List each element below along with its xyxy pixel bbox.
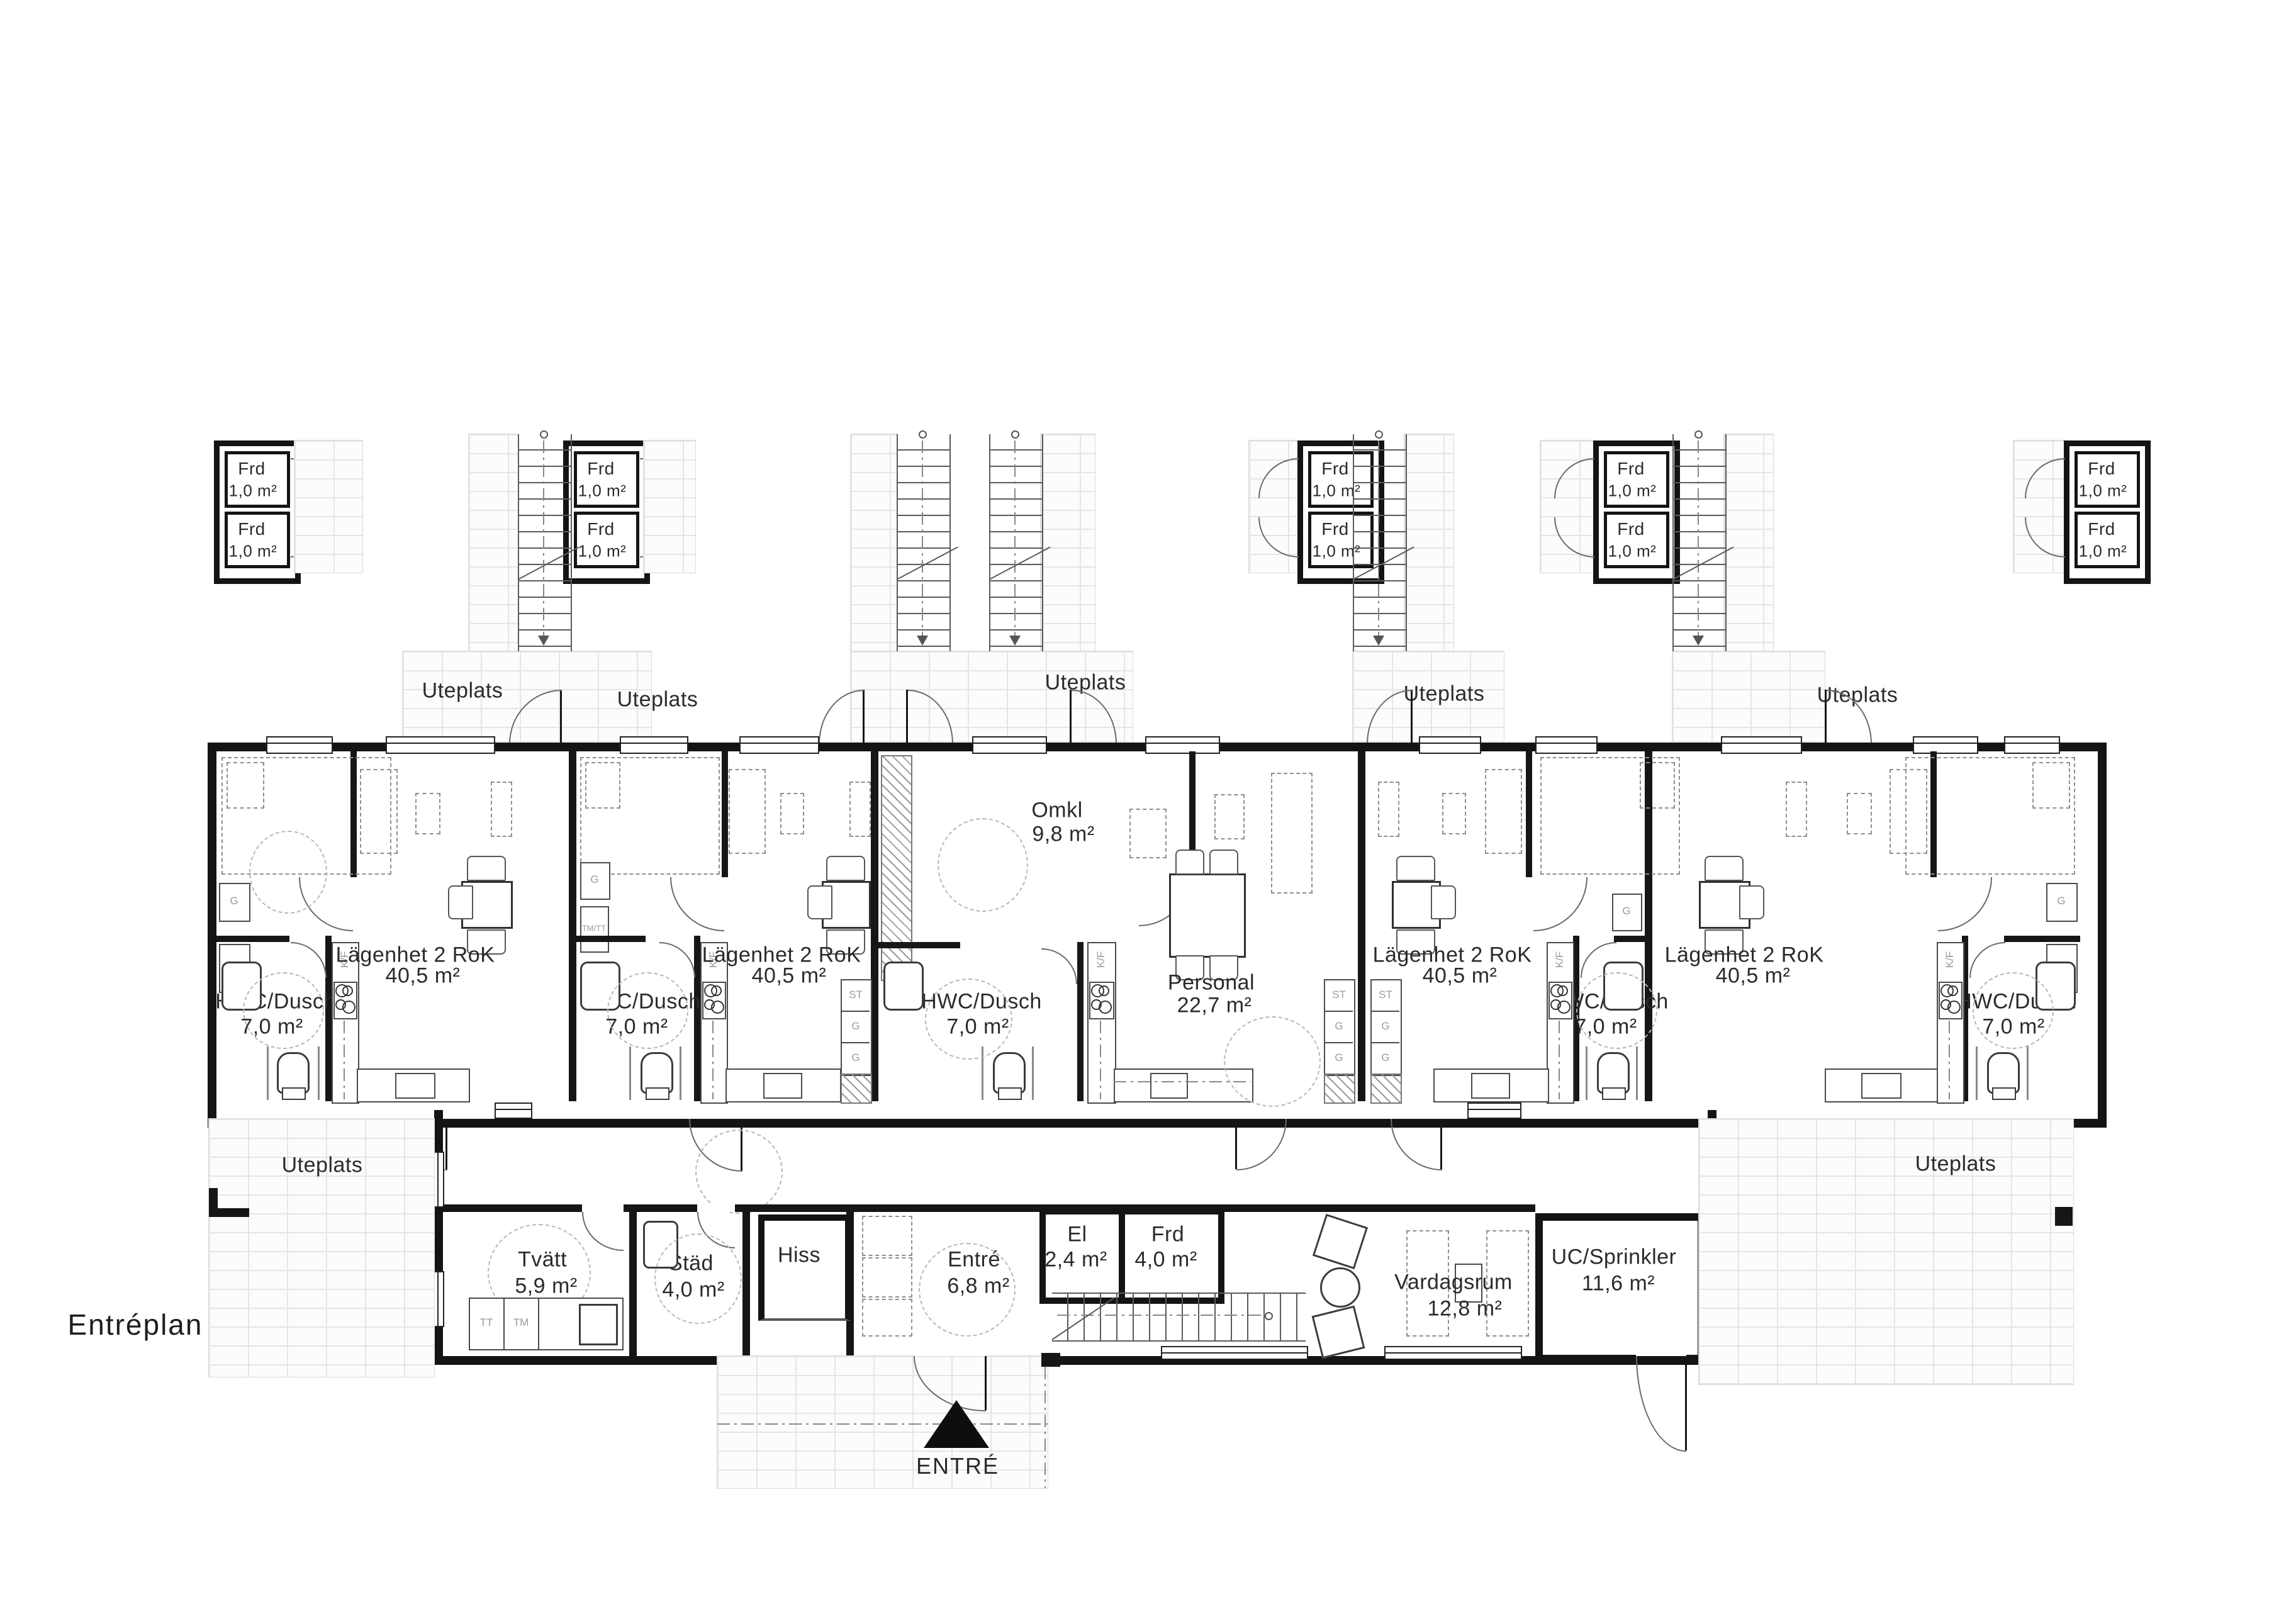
coffee-table: [780, 793, 804, 834]
turning-circle: [919, 1243, 1016, 1337]
storage-label: Frd: [1617, 459, 1645, 479]
turning-circle: [695, 1130, 783, 1214]
room-area: 11,6 m²: [1582, 1272, 1655, 1296]
storage-label: Frd: [238, 459, 266, 479]
coat-rack: [841, 1074, 872, 1104]
appliance: [579, 1304, 618, 1345]
uteplats-label: Uteplats: [617, 688, 698, 712]
armchair: [1129, 809, 1167, 858]
room-label: Hiss: [778, 1243, 820, 1268]
room-label: UC/Sprinkler: [1552, 1245, 1677, 1270]
room-area: 2,4 m²: [1044, 1248, 1107, 1272]
entrance-label: ENTRÉ: [916, 1453, 999, 1479]
storage-area: 1,0 m²: [229, 481, 277, 501]
uteplats-label: Uteplats: [1045, 671, 1126, 695]
coffee-table: [1214, 794, 1245, 839]
paving: [644, 440, 695, 573]
bed-pillow: [2032, 762, 2070, 809]
storage-area: 1,0 m²: [578, 542, 627, 561]
armchair: [1378, 782, 1399, 837]
coat-storage: [862, 1257, 912, 1298]
turning-circle: [1576, 972, 1657, 1049]
window: [266, 736, 333, 754]
window: [433, 1152, 444, 1208]
uteplats-label: Uteplats: [422, 679, 503, 704]
apartment-area: 40,5 m²: [1716, 964, 1791, 989]
bed-pillow: [1640, 762, 1675, 809]
sink: [1471, 1073, 1510, 1099]
storage-area: 1,0 m²: [578, 481, 627, 501]
room-area: 9,8 m²: [1032, 822, 1094, 847]
window: [1535, 736, 1598, 754]
module-wall: [1358, 751, 1365, 1101]
window: [739, 736, 819, 754]
storage-label: Frd: [587, 519, 615, 539]
room-area: 22,7 m²: [1177, 994, 1252, 1018]
turning-circle: [1973, 972, 2054, 1049]
apartment-area: 40,5 m²: [386, 964, 461, 989]
storage-label: Frd: [1321, 519, 1349, 539]
sink: [395, 1073, 435, 1099]
storage-area: 1,0 m²: [2079, 542, 2127, 561]
room-area: 4,0 m²: [1134, 1248, 1197, 1272]
coat-rack: [1370, 1074, 1402, 1104]
storage-label: Frd: [1321, 459, 1349, 479]
storage-area: 1,0 m²: [1608, 481, 1657, 501]
turning-circle: [607, 972, 688, 1049]
storage-label: Frd: [587, 459, 615, 479]
sofa: [1890, 769, 1927, 854]
window: [2004, 736, 2060, 754]
window: [620, 736, 688, 754]
storage-label: Frd: [2088, 519, 2115, 539]
apartment-area: 40,5 m²: [1423, 964, 1498, 989]
window: [1161, 1346, 1308, 1360]
sofa: [1485, 769, 1522, 854]
window: [972, 736, 1047, 754]
storage-label: Frd: [1617, 519, 1645, 539]
floor-plan: Frd 1,0 m² Frd 1,0 m² Frd 1,0 m² Frd 1,0…: [0, 0, 2296, 1604]
window: [433, 1271, 444, 1327]
storage-area: 1,0 m²: [229, 542, 277, 561]
page-title: Entréplan: [68, 1308, 203, 1342]
uteplats-label: Uteplats: [282, 1153, 363, 1178]
window: [1384, 1346, 1522, 1360]
sofa: [1271, 773, 1313, 894]
room-label: Omkl: [1031, 799, 1082, 823]
uteplats-label: Uteplats: [1404, 682, 1485, 707]
turning-circle: [654, 1233, 742, 1324]
bed-pillow: [585, 762, 620, 809]
storage-label: Frd: [2088, 459, 2115, 479]
window: [1145, 736, 1220, 754]
window: [386, 736, 495, 754]
sink: [1861, 1073, 1901, 1099]
dining-table: [1169, 873, 1246, 958]
armchair: [491, 782, 512, 837]
paving: [294, 440, 362, 573]
storage-area: 1,0 m²: [1608, 542, 1657, 561]
window: [1419, 736, 1481, 754]
armchair: [849, 782, 871, 837]
turning-circle: [1224, 1016, 1321, 1107]
sofa: [360, 769, 398, 854]
bed-pillow: [227, 762, 264, 809]
room-label: Personal: [1168, 971, 1255, 995]
coffee-table: [415, 793, 440, 834]
sofa: [729, 769, 766, 854]
room-area: 12,8 m²: [1428, 1297, 1503, 1321]
storage-label: Frd: [238, 519, 266, 539]
room-label: Frd: [1151, 1223, 1185, 1247]
window: [1721, 736, 1802, 754]
sink: [1150, 1073, 1188, 1099]
coat-storage: [862, 1299, 912, 1337]
armchair: [1786, 782, 1807, 837]
turning-circle: [938, 818, 1028, 912]
window: [1913, 736, 1978, 754]
turning-circle: [243, 972, 324, 1049]
basin: [883, 962, 924, 1011]
coffee-table: [1847, 793, 1872, 834]
module-wall: [569, 751, 576, 1101]
uteplats-label: Uteplats: [1915, 1152, 1996, 1177]
room-label: Vardagsrum: [1394, 1270, 1513, 1295]
room-label: El: [1067, 1223, 1087, 1247]
coffee-table: [1442, 793, 1466, 834]
turning-circle: [925, 979, 1012, 1060]
coat-rack: [1324, 1074, 1355, 1104]
sink: [763, 1073, 802, 1099]
coat-storage: [862, 1216, 912, 1256]
apartment-area: 40,5 m²: [752, 964, 827, 989]
storage-area: 1,0 m²: [2079, 481, 2127, 501]
entrance-arrow-icon: [924, 1400, 989, 1448]
turning-circle: [249, 831, 327, 914]
